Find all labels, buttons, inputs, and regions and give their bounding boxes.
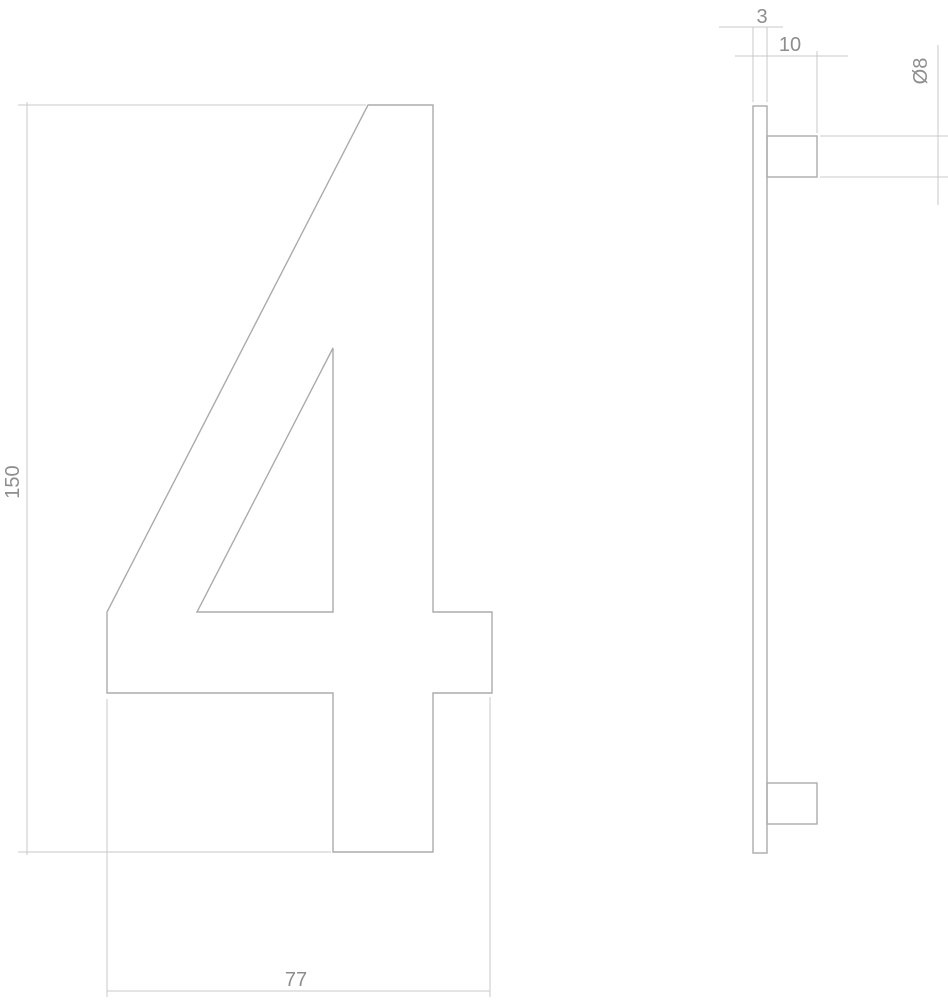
dimension-thickness: 3 bbox=[719, 6, 783, 102]
mounting-peg-top bbox=[767, 136, 817, 177]
dimension-peg-diameter-label: Ø8 bbox=[910, 58, 932, 85]
dimension-thickness-label: 3 bbox=[756, 6, 767, 28]
mounting-peg-bottom bbox=[767, 783, 817, 824]
side-view bbox=[753, 106, 817, 853]
dimension-peg-diameter: Ø8 bbox=[820, 45, 948, 205]
dimension-height-label: 150 bbox=[2, 465, 24, 498]
numeral-4-outline bbox=[107, 105, 492, 852]
dimension-width-label: 77 bbox=[285, 969, 307, 991]
dimension-peg-length: 10 bbox=[735, 34, 848, 133]
technical-drawing: 150 77 3 10 Ø8 bbox=[0, 0, 948, 1000]
front-view bbox=[107, 105, 492, 852]
plate-profile bbox=[753, 106, 767, 853]
drawing-svg: 150 77 3 10 Ø8 bbox=[0, 0, 948, 1000]
dimension-peg-length-label: 10 bbox=[779, 34, 801, 56]
